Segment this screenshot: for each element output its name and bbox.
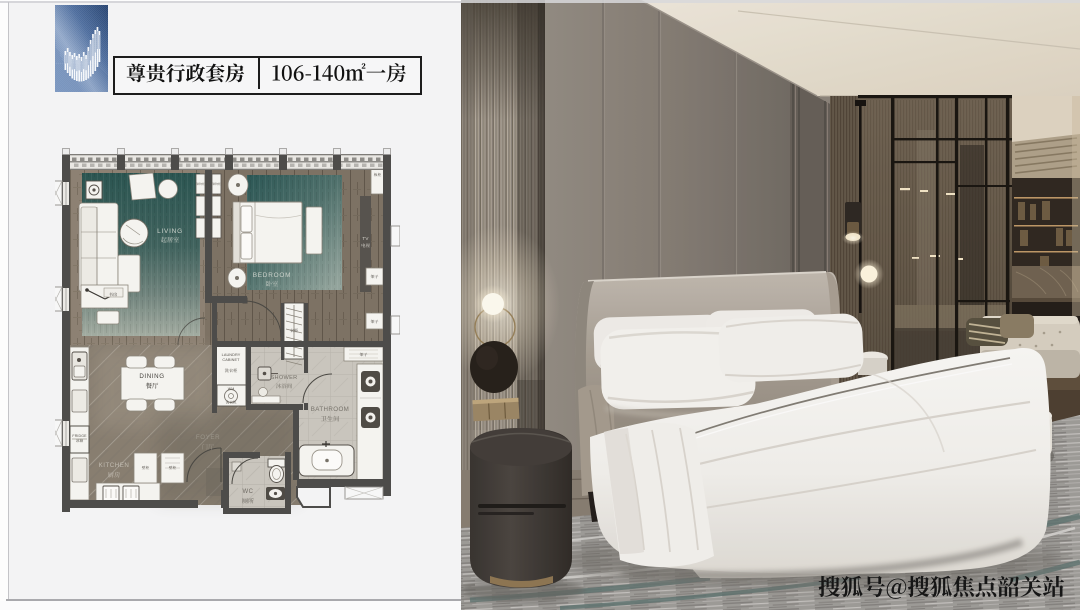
svg-text:DINING: DINING	[139, 373, 164, 380]
svg-text:KITCHEN: KITCHEN	[99, 462, 130, 469]
svg-text:BEDROOM: BEDROOM	[253, 272, 292, 279]
svg-text:WC: WC	[243, 489, 254, 495]
svg-text:CABINET: CABINET	[222, 358, 240, 362]
svg-text:TV: TV	[362, 236, 369, 241]
svg-text:FOYER: FOYER	[196, 434, 220, 441]
svg-text:WM: WM	[228, 387, 235, 391]
svg-text:SHOWER: SHOWER	[271, 375, 298, 381]
svg-text:LIVING: LIVING	[157, 228, 183, 235]
svg-text:LAUNDRY: LAUNDRY	[222, 353, 241, 357]
svg-text:BATHROOM: BATHROOM	[311, 406, 350, 413]
svg-text:FRIDGE: FRIDGE	[72, 434, 87, 438]
